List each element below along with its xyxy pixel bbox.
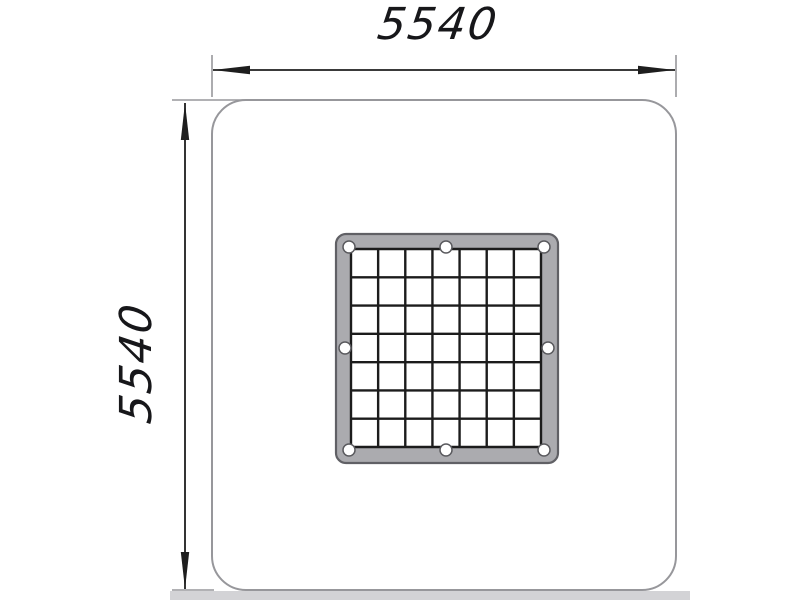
bolt-hole-bottom-right — [538, 444, 550, 456]
grate-assembly — [336, 234, 558, 463]
bolt-hole-top-middle — [440, 241, 452, 253]
arrowhead-left-top — [181, 103, 189, 140]
bolt-hole-top-left — [343, 241, 355, 253]
bolt-hole-right-middle — [542, 342, 554, 354]
left-dimension-label: 5540 — [107, 278, 167, 448]
top-dimension-label: 5540 — [353, 0, 523, 52]
bolt-hole-bottom-left — [343, 444, 355, 456]
arrowhead-left-bottom — [181, 552, 189, 589]
arrowhead-top-right — [638, 66, 675, 74]
drawing-canvas: 5540 5540 — [0, 0, 800, 600]
left-dimension-value: 5540 — [107, 299, 167, 427]
bolt-hole-bottom-middle — [440, 444, 452, 456]
ground-band — [170, 591, 690, 600]
bolt-hole-top-right — [538, 241, 550, 253]
grate-opening — [351, 249, 541, 447]
bolt-hole-left-middle — [339, 342, 351, 354]
top-dimension-value: 5540 — [374, 0, 502, 52]
arrowhead-top-left — [213, 66, 250, 74]
